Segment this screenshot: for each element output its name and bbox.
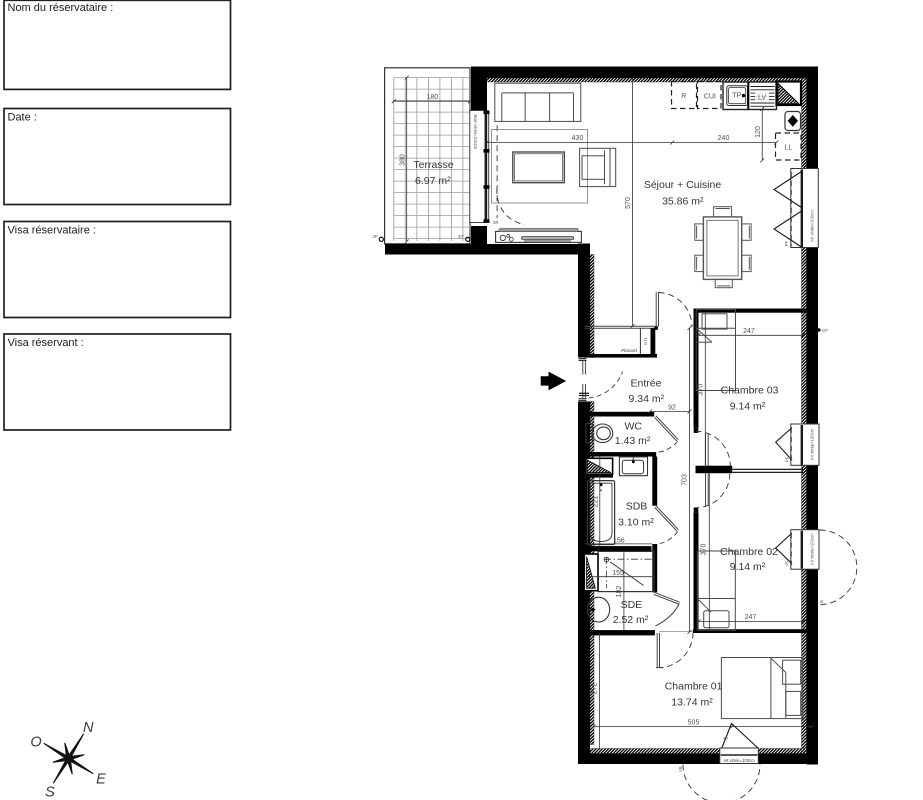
svg-text:505: 505: [688, 719, 700, 726]
svg-text:247: 247: [745, 614, 757, 621]
svg-text:Entrée: Entrée: [631, 378, 662, 390]
svg-text:Terrasse: Terrasse: [413, 159, 453, 171]
svg-text:AIt vitrée=100cm: AIt vitrée=100cm: [723, 758, 755, 763]
svg-text:13.74 m²: 13.74 m²: [671, 697, 713, 709]
svg-text:9.14 m²: 9.14 m²: [730, 561, 766, 573]
svg-text:Chambre 02: Chambre 02: [720, 546, 778, 558]
svg-text:Nom du réservataire :: Nom du réservataire :: [8, 2, 114, 14]
svg-text:Date :: Date :: [8, 112, 37, 124]
svg-text:LL: LL: [785, 145, 793, 152]
svg-text:R: R: [681, 93, 686, 100]
svg-text:703: 703: [681, 474, 688, 486]
svg-text:TP: TP: [732, 92, 741, 99]
svg-text:4P: 4P: [723, 736, 728, 741]
svg-text:PF: PF: [784, 560, 789, 566]
svg-text:5R: 5R: [493, 220, 498, 225]
svg-text:ET: ET: [459, 234, 465, 239]
svg-text:570: 570: [625, 197, 632, 209]
svg-text:LV: LV: [758, 95, 766, 102]
svg-text:380: 380: [400, 154, 407, 166]
svg-text:E: E: [96, 772, 106, 788]
svg-text:AIt vitrée=100cm: AIt vitrée=100cm: [810, 428, 815, 460]
svg-text:370: 370: [698, 384, 705, 396]
svg-text:155: 155: [612, 570, 624, 577]
svg-text:Baie vitrée=215cm: Baie vitrée=215cm: [473, 115, 478, 150]
svg-text:6.97 m²: 6.97 m²: [415, 175, 451, 187]
svg-text:O: O: [30, 735, 41, 751]
svg-text:1.43 m²: 1.43 m²: [615, 435, 651, 447]
svg-text:Séjour + Cuisine: Séjour + Cuisine: [644, 179, 721, 191]
svg-text:PF: PF: [784, 456, 789, 462]
svg-text:PF: PF: [784, 240, 789, 246]
svg-text:EP: EP: [822, 328, 828, 333]
svg-text:Visa réservataire :: Visa réservataire :: [8, 225, 96, 237]
svg-text:272: 272: [592, 683, 599, 695]
svg-text:GTL: GTL: [643, 336, 648, 345]
svg-text:Placard: Placard: [621, 348, 637, 353]
svg-text:3.10 m²: 3.10 m²: [618, 517, 654, 529]
svg-text:2.52 m²: 2.52 m²: [613, 614, 649, 626]
svg-text:156: 156: [613, 537, 625, 544]
svg-text:3P: 3P: [373, 234, 378, 239]
svg-text:9.14 m²: 9.14 m²: [730, 401, 766, 413]
svg-text:240: 240: [718, 135, 730, 142]
svg-text:182: 182: [616, 586, 623, 598]
svg-text:VB: VB: [678, 766, 683, 772]
svg-text:Chambre 01: Chambre 01: [665, 681, 723, 693]
svg-text:CUI: CUI: [704, 94, 716, 101]
svg-text:92: 92: [668, 404, 676, 411]
svg-text:WC: WC: [624, 421, 642, 433]
svg-text:AIt vitrée=103cm: AIt vitrée=103cm: [810, 533, 815, 565]
svg-text:180: 180: [426, 94, 438, 101]
svg-text:AIt vitrée=100cm: AIt vitrée=100cm: [810, 210, 815, 242]
svg-text:247: 247: [743, 328, 755, 335]
svg-text:N: N: [83, 720, 94, 736]
svg-text:Visa réservant :: Visa réservant :: [8, 337, 84, 349]
svg-text:35.86 m²: 35.86 m²: [662, 196, 704, 208]
svg-text:370: 370: [701, 544, 708, 556]
svg-text:SDB: SDB: [626, 501, 648, 513]
svg-text:221: 221: [593, 496, 600, 508]
svg-text:120: 120: [755, 126, 762, 138]
svg-text:9.34 m²: 9.34 m²: [628, 393, 664, 405]
svg-text:Chambre 03: Chambre 03: [721, 385, 779, 397]
svg-text:430: 430: [572, 135, 584, 142]
svg-text:S: S: [45, 785, 55, 800]
svg-text:B: B: [819, 600, 824, 603]
